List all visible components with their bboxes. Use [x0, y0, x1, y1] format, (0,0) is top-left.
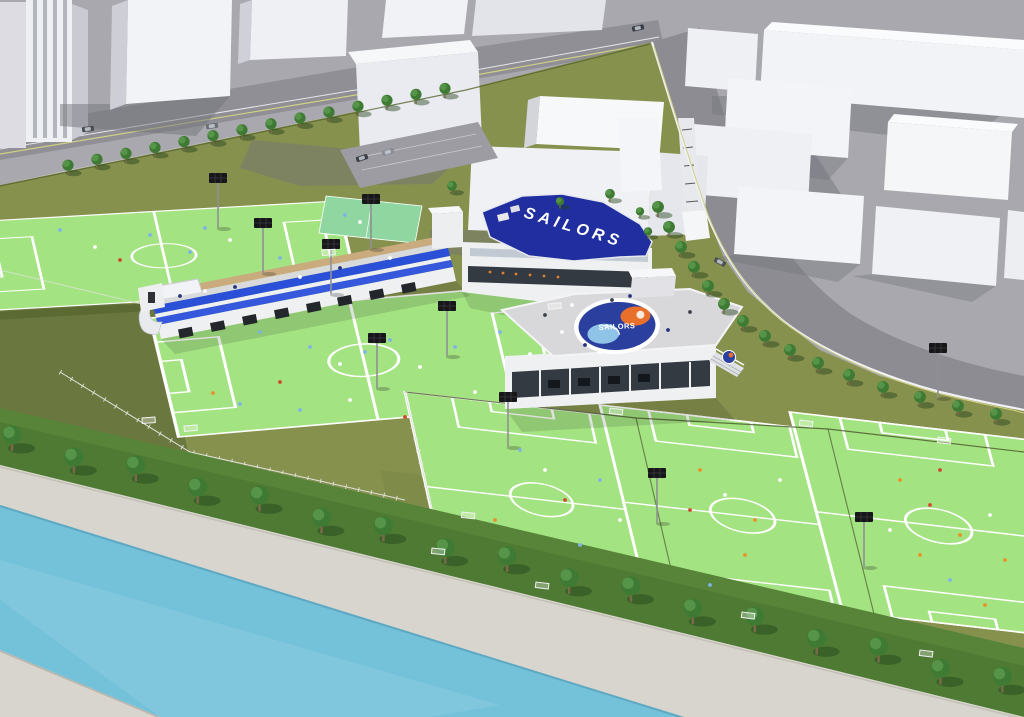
player-figure: [348, 398, 352, 402]
player-figure: [753, 518, 757, 522]
goal: [184, 425, 197, 432]
player-figure: [598, 350, 602, 354]
player-figure: [178, 294, 182, 298]
goal: [609, 408, 623, 415]
player-figure: [928, 503, 932, 507]
goal: [741, 612, 755, 619]
goal: [548, 303, 562, 310]
player-figure: [778, 478, 782, 482]
goal: [431, 548, 445, 555]
goal: [937, 437, 951, 444]
player-figure: [338, 266, 342, 270]
player-figure: [358, 220, 362, 224]
player-figure: [610, 298, 614, 302]
player-figure: [666, 328, 670, 332]
player-figure: [238, 402, 242, 406]
player-figure: [278, 380, 282, 384]
player-figure: [988, 513, 992, 517]
player-figure: [58, 228, 62, 232]
player-figure: [233, 285, 237, 289]
player-figure: [493, 518, 497, 522]
player-figure: [118, 258, 122, 262]
goal: [535, 582, 549, 589]
player-figure: [543, 468, 547, 472]
player-figure: [628, 294, 632, 298]
player-figure: [898, 478, 902, 482]
player-figure: [888, 528, 892, 532]
player-figure: [418, 365, 422, 369]
player-figure: [948, 578, 952, 582]
player-figure: [498, 330, 502, 334]
player-figure: [938, 468, 942, 472]
player-figure: [723, 493, 727, 497]
player-figure: [338, 362, 342, 366]
player-figure: [343, 213, 347, 217]
player-figure: [211, 391, 215, 395]
player-figure: [473, 390, 477, 394]
goal: [919, 650, 933, 657]
player-figure: [188, 250, 192, 254]
player-figure: [563, 498, 567, 502]
player-figure: [228, 238, 232, 242]
player-figure: [958, 533, 962, 537]
player-figure: [518, 448, 522, 452]
player-figure: [298, 408, 302, 412]
goal: [461, 512, 475, 519]
player-figure: [203, 226, 207, 230]
player-figure: [403, 415, 407, 419]
goal: [322, 249, 335, 255]
player-figure: [308, 345, 312, 349]
player-figure: [983, 603, 987, 607]
player-figure: [743, 553, 747, 557]
player-figure: [698, 468, 702, 472]
player-figure: [570, 303, 574, 307]
player-figure: [918, 553, 922, 557]
player-figure: [388, 256, 392, 260]
goal: [799, 420, 813, 427]
player-figure: [258, 330, 262, 334]
player-figure: [298, 275, 302, 279]
player-figure: [583, 343, 587, 347]
player-figure: [646, 340, 650, 344]
player-figure: [148, 233, 152, 237]
player-figure: [560, 330, 564, 334]
player-figure: [618, 518, 622, 522]
aerial-render: SAILORS SAILORS: [0, 0, 1024, 717]
player-figure: [1003, 558, 1007, 562]
render-canvas: SAILORS SAILORS: [0, 0, 1024, 717]
goal: [142, 417, 155, 423]
player-figure: [453, 345, 457, 349]
player-figure: [528, 352, 532, 356]
player-figure: [708, 583, 712, 587]
player-figure: [203, 289, 207, 293]
crest-text: SAILORS: [598, 321, 635, 332]
player-figure: [598, 478, 602, 482]
player-figure: [688, 508, 692, 512]
player-figure: [388, 338, 392, 342]
player-figure: [278, 256, 282, 260]
player-figure: [93, 245, 97, 249]
player-figure: [578, 543, 582, 547]
player-figure: [688, 310, 692, 314]
player-figure: [363, 350, 367, 354]
player-figure: [543, 313, 547, 317]
wall-crest: [723, 351, 736, 364]
